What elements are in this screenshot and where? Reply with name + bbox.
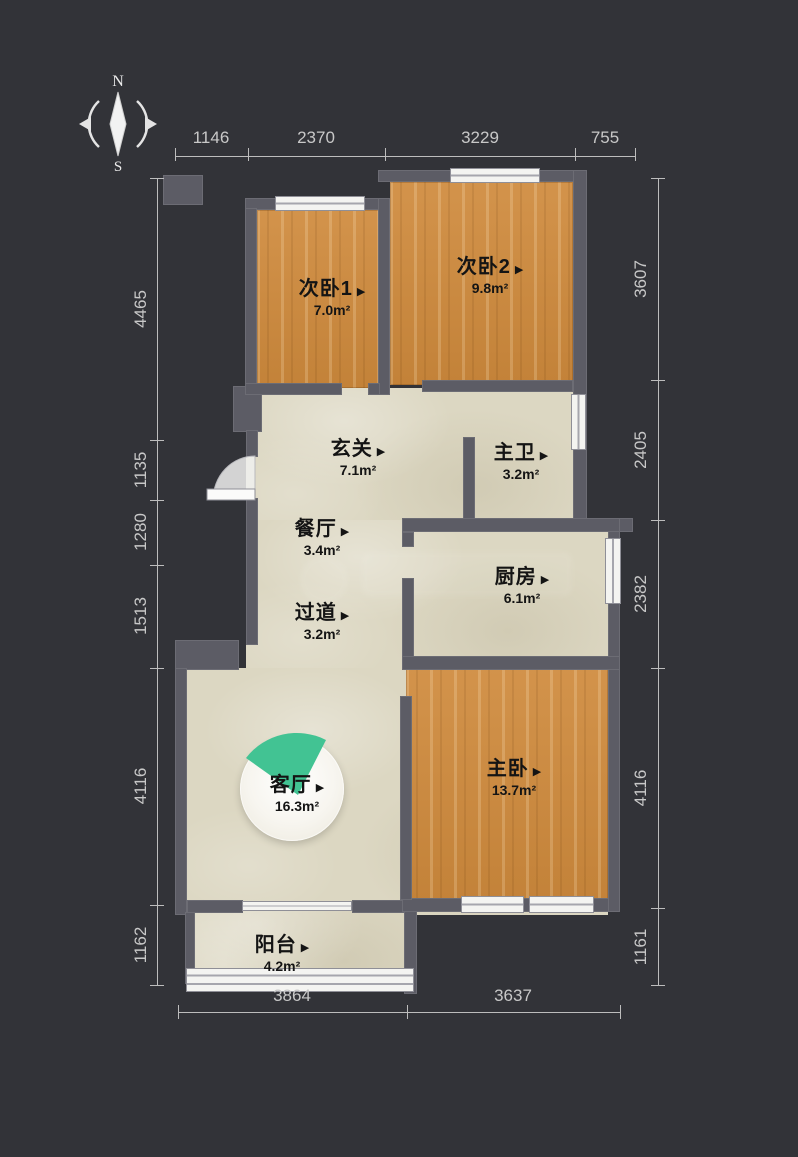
window-kitchen-right [605, 538, 621, 604]
wall-living-balcony-left [187, 900, 243, 913]
opening-balcony-door [242, 901, 352, 911]
dim-right-1: 3607 [631, 260, 651, 298]
room-name: 餐厅 [295, 518, 337, 540]
dim-top-4: 755 [591, 128, 619, 148]
room-label-master[interactable]: 主卧▶ 13.7m² [487, 752, 541, 798]
room-area: 3.4m² [295, 542, 349, 558]
room-arrow-icon: ▶ [301, 942, 309, 954]
wall-stub-top-left [163, 175, 203, 205]
window-bed1-top [275, 196, 365, 211]
room-name: 主卫 [494, 442, 536, 464]
room-name: 厨房 [495, 566, 537, 588]
window-bed2-top [450, 168, 540, 183]
dim-left-6: 1162 [131, 927, 151, 964]
wall-left-mid-lower [246, 498, 258, 645]
wall-between-bedrooms [378, 198, 390, 395]
room-label-living[interactable]: 客厅▶ 16.3m² [270, 768, 324, 814]
wall-living-balcony-right [352, 900, 408, 913]
wall-left-bed1 [245, 208, 257, 395]
room-name: 过道 [295, 602, 337, 624]
wall-kitchen-left-upper [402, 532, 414, 547]
dim-left-2: 1135 [131, 452, 151, 489]
room-name: 阳台 [255, 934, 297, 956]
room-label-bed1[interactable]: 次卧1▶ 7.0m² [299, 272, 366, 318]
room-arrow-icon: ▶ [316, 782, 324, 794]
dim-left-4: 1513 [131, 597, 151, 635]
room-name: 主卧 [487, 758, 529, 780]
dim-line-right [658, 178, 659, 985]
dim-right-2: 2405 [631, 431, 651, 469]
room-area: 9.8m² [457, 280, 524, 296]
window-master-bottom-1 [461, 896, 524, 913]
room-label-bed2[interactable]: 次卧2▶ 9.8m² [457, 250, 524, 296]
room-arrow-icon: ▶ [541, 574, 549, 586]
dim-top-3: 3229 [461, 128, 499, 148]
room-name: 客厅 [270, 774, 312, 796]
room-area: 4.2m² [255, 958, 309, 974]
dim-top-1: 1146 [193, 128, 230, 148]
room-area: 16.3m² [270, 798, 324, 814]
room-label-dining[interactable]: 餐厅▶ 3.4m² [295, 512, 349, 558]
room-area: 7.0m² [299, 302, 366, 318]
room-arrow-icon: ▶ [540, 450, 548, 462]
dim-right-5: 1161 [631, 929, 651, 966]
wall-below-bed1-b [368, 383, 380, 395]
dim-bottom-2: 3637 [494, 986, 532, 1006]
wall-below-bed2 [422, 380, 573, 392]
room-label-corridor[interactable]: 过道▶ 3.2m² [295, 596, 349, 642]
dim-left-3: 1280 [131, 513, 151, 551]
room-area: 7.1m² [331, 462, 385, 478]
room-arrow-icon: ▶ [377, 446, 385, 458]
dim-right-3: 2382 [631, 575, 651, 613]
compass-south-label: S [114, 159, 122, 174]
wall-master-top [402, 656, 620, 670]
window-bathroom-right [571, 394, 586, 450]
room-name: 次卧1 [299, 278, 353, 300]
entrance-door-swing [203, 448, 259, 506]
room-area: 3.2m² [295, 626, 349, 642]
room-arrow-icon: ▶ [533, 766, 541, 778]
room-name: 玄关 [331, 438, 373, 460]
dim-line-top [175, 156, 635, 157]
wall-bathroom-left [463, 437, 475, 530]
compass-north-label: N [112, 73, 124, 90]
room-name: 次卧2 [457, 256, 511, 278]
dim-left-5: 4116 [131, 768, 151, 805]
window-master-bottom-2 [529, 896, 594, 913]
room-label-bathroom[interactable]: 主卫▶ 3.2m² [494, 436, 548, 482]
dim-line-bottom [178, 1012, 620, 1013]
room-label-kitchen[interactable]: 厨房▶ 6.1m² [495, 560, 549, 606]
dim-bottom-1: 3864 [273, 986, 311, 1006]
room-area: 13.7m² [487, 782, 541, 798]
room-arrow-icon: ▶ [357, 286, 365, 298]
wall-living-master [400, 696, 412, 900]
compass-icon: N S [72, 70, 164, 174]
dim-right-4: 4116 [631, 770, 651, 807]
wall-left-living [175, 668, 187, 915]
wall-right-upper [573, 170, 587, 530]
dim-left-1: 4465 [131, 290, 151, 328]
floor-plan-canvas: 次卧1▶ 7.0m² 次卧2▶ 9.8m² 玄关▶ 7.1m² 主卫▶ 3.2m… [0, 0, 798, 1157]
room-arrow-icon: ▶ [515, 264, 523, 276]
dim-top-2: 2370 [297, 128, 335, 148]
room-area: 6.1m² [495, 590, 549, 606]
wall-corner-lower-left [175, 640, 239, 670]
room-label-balcony[interactable]: 阳台▶ 4.2m² [255, 928, 309, 974]
room-arrow-icon: ▶ [341, 526, 349, 538]
room-area: 3.2m² [494, 466, 548, 482]
room-arrow-icon: ▶ [341, 610, 349, 622]
wall-kitchen-top [402, 518, 620, 532]
wall-below-bed1-a [245, 383, 342, 395]
dim-line-left [157, 178, 158, 985]
room-label-entry[interactable]: 玄关▶ 7.1m² [331, 432, 385, 478]
